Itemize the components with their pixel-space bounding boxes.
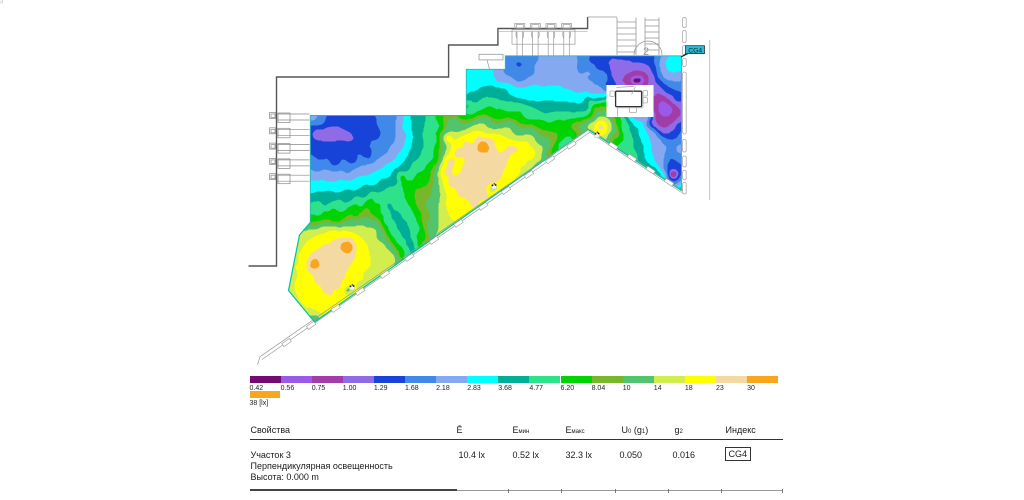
svg-text:CG4: CG4 (688, 47, 702, 54)
svg-text:2: 2 (643, 46, 649, 58)
